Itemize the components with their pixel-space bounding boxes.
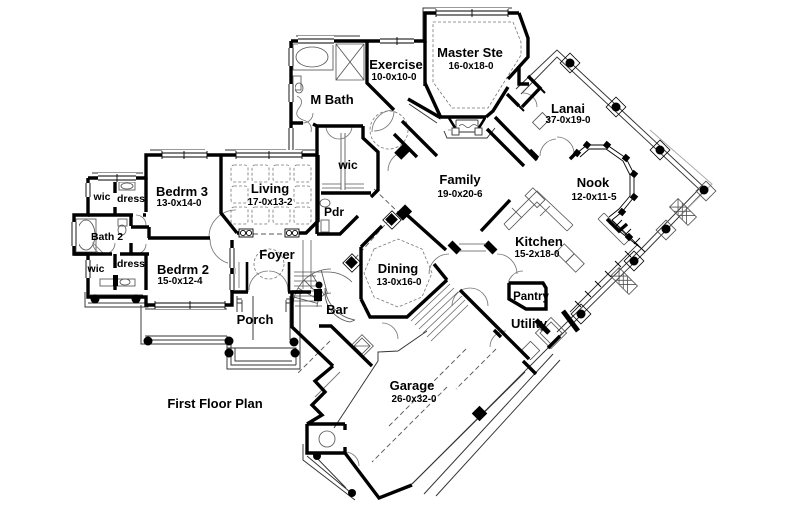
svg-text:Porch: Porch [237, 312, 274, 327]
svg-text:wic: wic [337, 158, 358, 172]
svg-text:Foyer: Foyer [259, 247, 294, 262]
svg-text:Living: Living [251, 181, 289, 196]
svg-text:Family: Family [439, 172, 481, 187]
svg-text:Dining: Dining [378, 261, 418, 276]
svg-text:M Bath: M Bath [310, 92, 353, 107]
svg-text:Pantry: Pantry [513, 291, 549, 303]
svg-text:Bar: Bar [326, 302, 348, 317]
svg-text:16-0x18-0: 16-0x18-0 [449, 60, 494, 72]
svg-text:12-0x11-5: 12-0x11-5 [572, 191, 617, 203]
svg-text:13-0x16-0: 13-0x16-0 [377, 276, 422, 288]
svg-text:Exercise: Exercise [369, 57, 423, 72]
svg-text:15-2x18-0: 15-2x18-0 [515, 248, 560, 260]
svg-text:Garage: Garage [390, 378, 435, 393]
svg-text:37-0x19-0: 37-0x19-0 [546, 114, 591, 126]
svg-text:First Floor Plan: First Floor Plan [167, 396, 262, 411]
svg-text:Nook: Nook [577, 175, 610, 190]
svg-text:10-0x10-0: 10-0x10-0 [372, 71, 417, 83]
svg-text:Bath 2: Bath 2 [91, 231, 123, 243]
svg-text:19-0x20-6: 19-0x20-6 [438, 188, 483, 200]
svg-text:26-0x32-0: 26-0x32-0 [392, 393, 437, 405]
svg-text:dress: dress [117, 258, 145, 270]
svg-text:wic: wic [93, 191, 111, 203]
svg-text:dress: dress [117, 193, 145, 205]
svg-text:Utility: Utility [511, 316, 548, 331]
svg-text:17-0x13-2: 17-0x13-2 [248, 196, 293, 208]
svg-text:Master Ste: Master Ste [437, 45, 503, 60]
svg-text:Kitchen: Kitchen [515, 234, 563, 249]
svg-text:13-0x14-0: 13-0x14-0 [157, 197, 202, 209]
svg-text:15-0x12-4: 15-0x12-4 [158, 275, 203, 287]
svg-text:wic: wic [87, 263, 105, 275]
svg-text:Pdr: Pdr [324, 205, 344, 219]
